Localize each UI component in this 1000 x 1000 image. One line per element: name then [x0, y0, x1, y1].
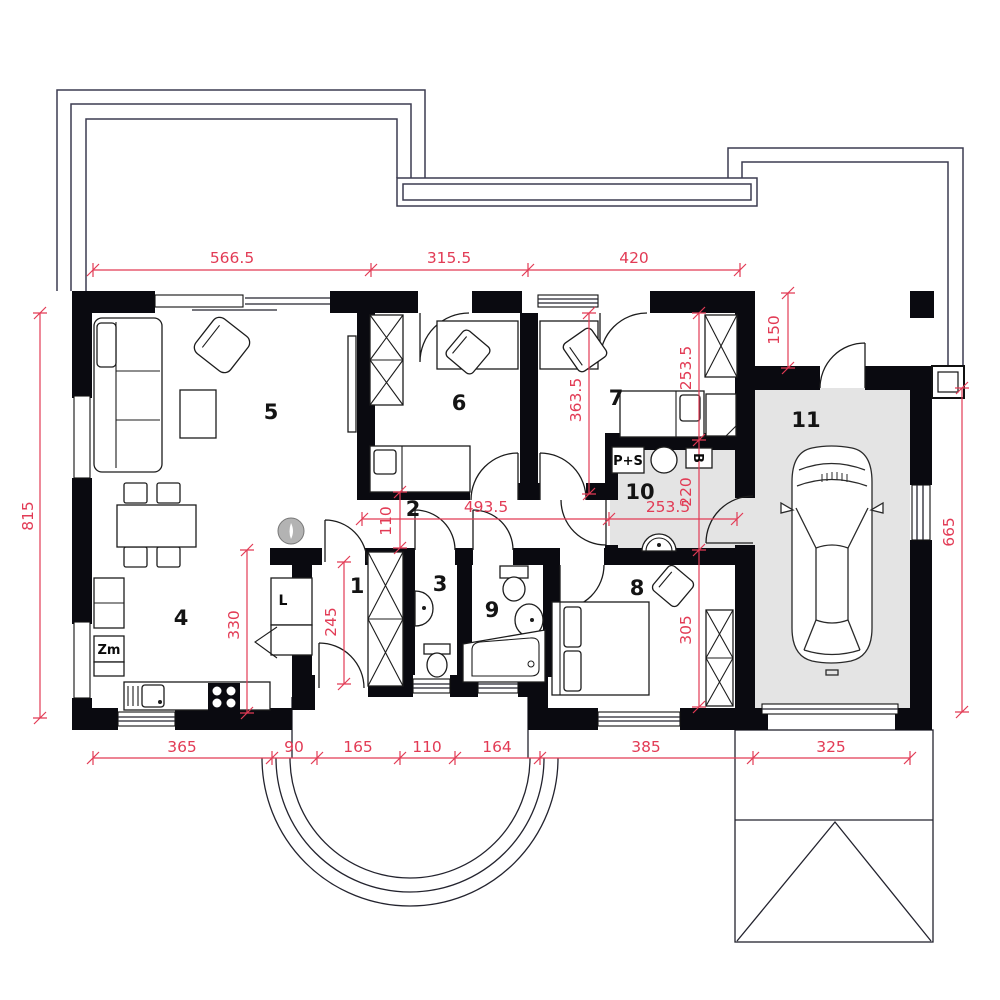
- toilet-9: [500, 566, 528, 601]
- dim-bottom-1: 365: [167, 738, 197, 756]
- wc-door: [415, 510, 455, 550]
- entrance-door: [319, 643, 364, 688]
- bath-door: [473, 510, 513, 550]
- boiler-label: B: [690, 453, 705, 463]
- dim-bottom-4: 110: [412, 738, 442, 756]
- dim-hall-height: 245: [322, 607, 340, 637]
- sofa: [94, 318, 162, 472]
- room-2-corridor: 2: [406, 497, 421, 521]
- room-4-kitchen: 4: [174, 606, 189, 630]
- garage-window: [912, 485, 930, 540]
- fridge-box: [271, 578, 312, 625]
- room-11-garage: 11: [791, 408, 820, 432]
- dim-garage-entry: 150: [765, 315, 783, 345]
- hall-door: [325, 520, 367, 562]
- wardrobe-hall: [368, 552, 403, 686]
- driveway-roof-outline: [735, 730, 933, 942]
- dining-side-window: [74, 622, 90, 698]
- bed-8: [552, 602, 649, 695]
- bedroom7-window: [538, 295, 598, 307]
- dim-bottom-2: 90: [284, 738, 304, 756]
- utility-door: [561, 500, 606, 545]
- dim-top-3: 420: [619, 249, 649, 267]
- room-1-hall: 1: [350, 574, 365, 598]
- room-3-wc: 3: [433, 572, 448, 596]
- room-7-bedroom: 7: [609, 386, 624, 410]
- room-8-bedroom: 8: [630, 576, 645, 600]
- car: [781, 446, 883, 675]
- bedroom8-window: [598, 712, 680, 726]
- dim-top-2: 315.5: [427, 249, 471, 267]
- room7-door: [540, 453, 586, 500]
- dim-bottom-6: 385: [631, 738, 661, 756]
- fridge-label: L: [279, 593, 288, 609]
- room-10-utility: 10: [625, 480, 654, 504]
- chair-8: [650, 563, 695, 608]
- stove: [208, 683, 240, 711]
- bathtub-9: [463, 630, 545, 682]
- dim-kitchen: 330: [225, 610, 243, 640]
- garage-side-door: [820, 343, 865, 388]
- dim-left: 815: [19, 501, 37, 531]
- coffee-table: [180, 390, 216, 438]
- freezer-label: Zm: [98, 643, 121, 658]
- living-window: [155, 295, 243, 307]
- dim-corridor: 493.5: [464, 498, 508, 516]
- room6-door: [471, 453, 518, 500]
- wardrobe-7: [705, 315, 737, 377]
- dim-bottom-5: 164: [482, 738, 512, 756]
- terrace-pillar: [910, 291, 934, 318]
- dim-bedroom8: 305: [677, 615, 695, 645]
- room-9-bathroom: 9: [485, 598, 500, 622]
- room-5-living: 5: [264, 400, 279, 424]
- dim-right: 665: [940, 517, 958, 547]
- dim-bottom-7: 325: [816, 738, 846, 756]
- tv-panel: [348, 336, 356, 432]
- wardrobe-8: [706, 610, 733, 706]
- wc-window: [413, 679, 450, 693]
- armchair: [191, 314, 253, 376]
- toilet-3: [424, 644, 450, 677]
- washbasin-3: [415, 591, 433, 626]
- entry-steps: [262, 697, 558, 906]
- dining-set: [117, 483, 196, 567]
- boiler-circle: [651, 447, 677, 473]
- dim-bottom-3: 165: [343, 738, 373, 756]
- bed-6: [370, 446, 470, 492]
- dim-top-1: 566.5: [210, 249, 254, 267]
- washer-dryer-label: P+S: [613, 454, 643, 469]
- chimney: [932, 366, 964, 398]
- floor-plan-canvas: 566.5 315.5 420 365 90 165 110 164 385 3…: [0, 0, 1000, 1000]
- bed-7: [620, 391, 736, 437]
- living-side-window: [74, 396, 90, 478]
- dim-hall-top: 253.5: [677, 346, 695, 390]
- kitchen-window: [118, 712, 175, 726]
- dim-bedroom-mid: 363.5: [567, 378, 585, 422]
- dim-corridor-width: 110: [377, 506, 395, 536]
- sink: [128, 685, 164, 707]
- room-6-bedroom: 6: [452, 391, 467, 415]
- wardrobe-6: [370, 315, 403, 405]
